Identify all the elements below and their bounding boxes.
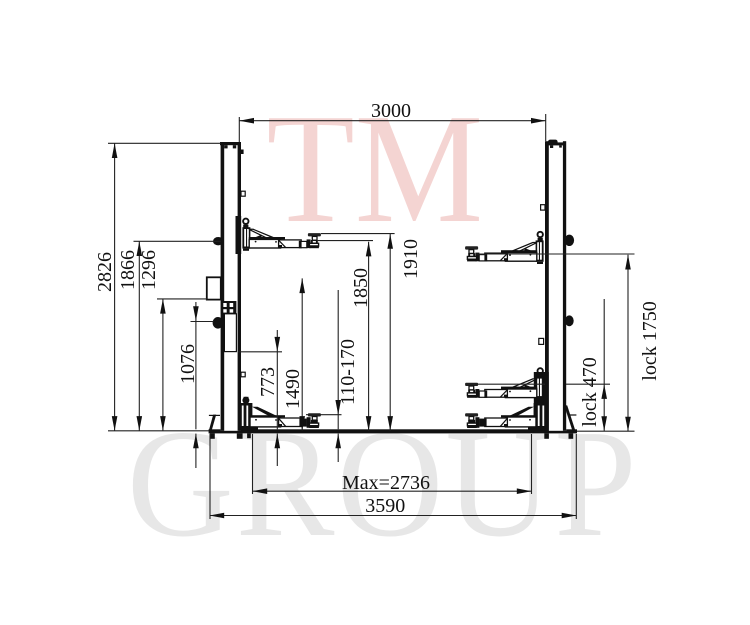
svg-text:2826: 2826 bbox=[94, 252, 116, 292]
svg-text:lock 470: lock 470 bbox=[579, 357, 601, 426]
svg-text:3000: 3000 bbox=[371, 100, 411, 122]
svg-text:1296: 1296 bbox=[138, 250, 160, 290]
svg-text:1866: 1866 bbox=[117, 250, 139, 290]
svg-text:1850: 1850 bbox=[350, 268, 372, 308]
svg-text:3590: 3590 bbox=[365, 495, 405, 517]
svg-text:773: 773 bbox=[257, 367, 279, 397]
svg-text:110-170: 110-170 bbox=[337, 339, 359, 405]
svg-text:Max=2736: Max=2736 bbox=[342, 472, 430, 494]
svg-text:lock 1750: lock 1750 bbox=[639, 301, 661, 380]
svg-text:1910: 1910 bbox=[400, 239, 422, 279]
svg-text:1076: 1076 bbox=[177, 344, 199, 384]
svg-text:1490: 1490 bbox=[282, 369, 304, 409]
